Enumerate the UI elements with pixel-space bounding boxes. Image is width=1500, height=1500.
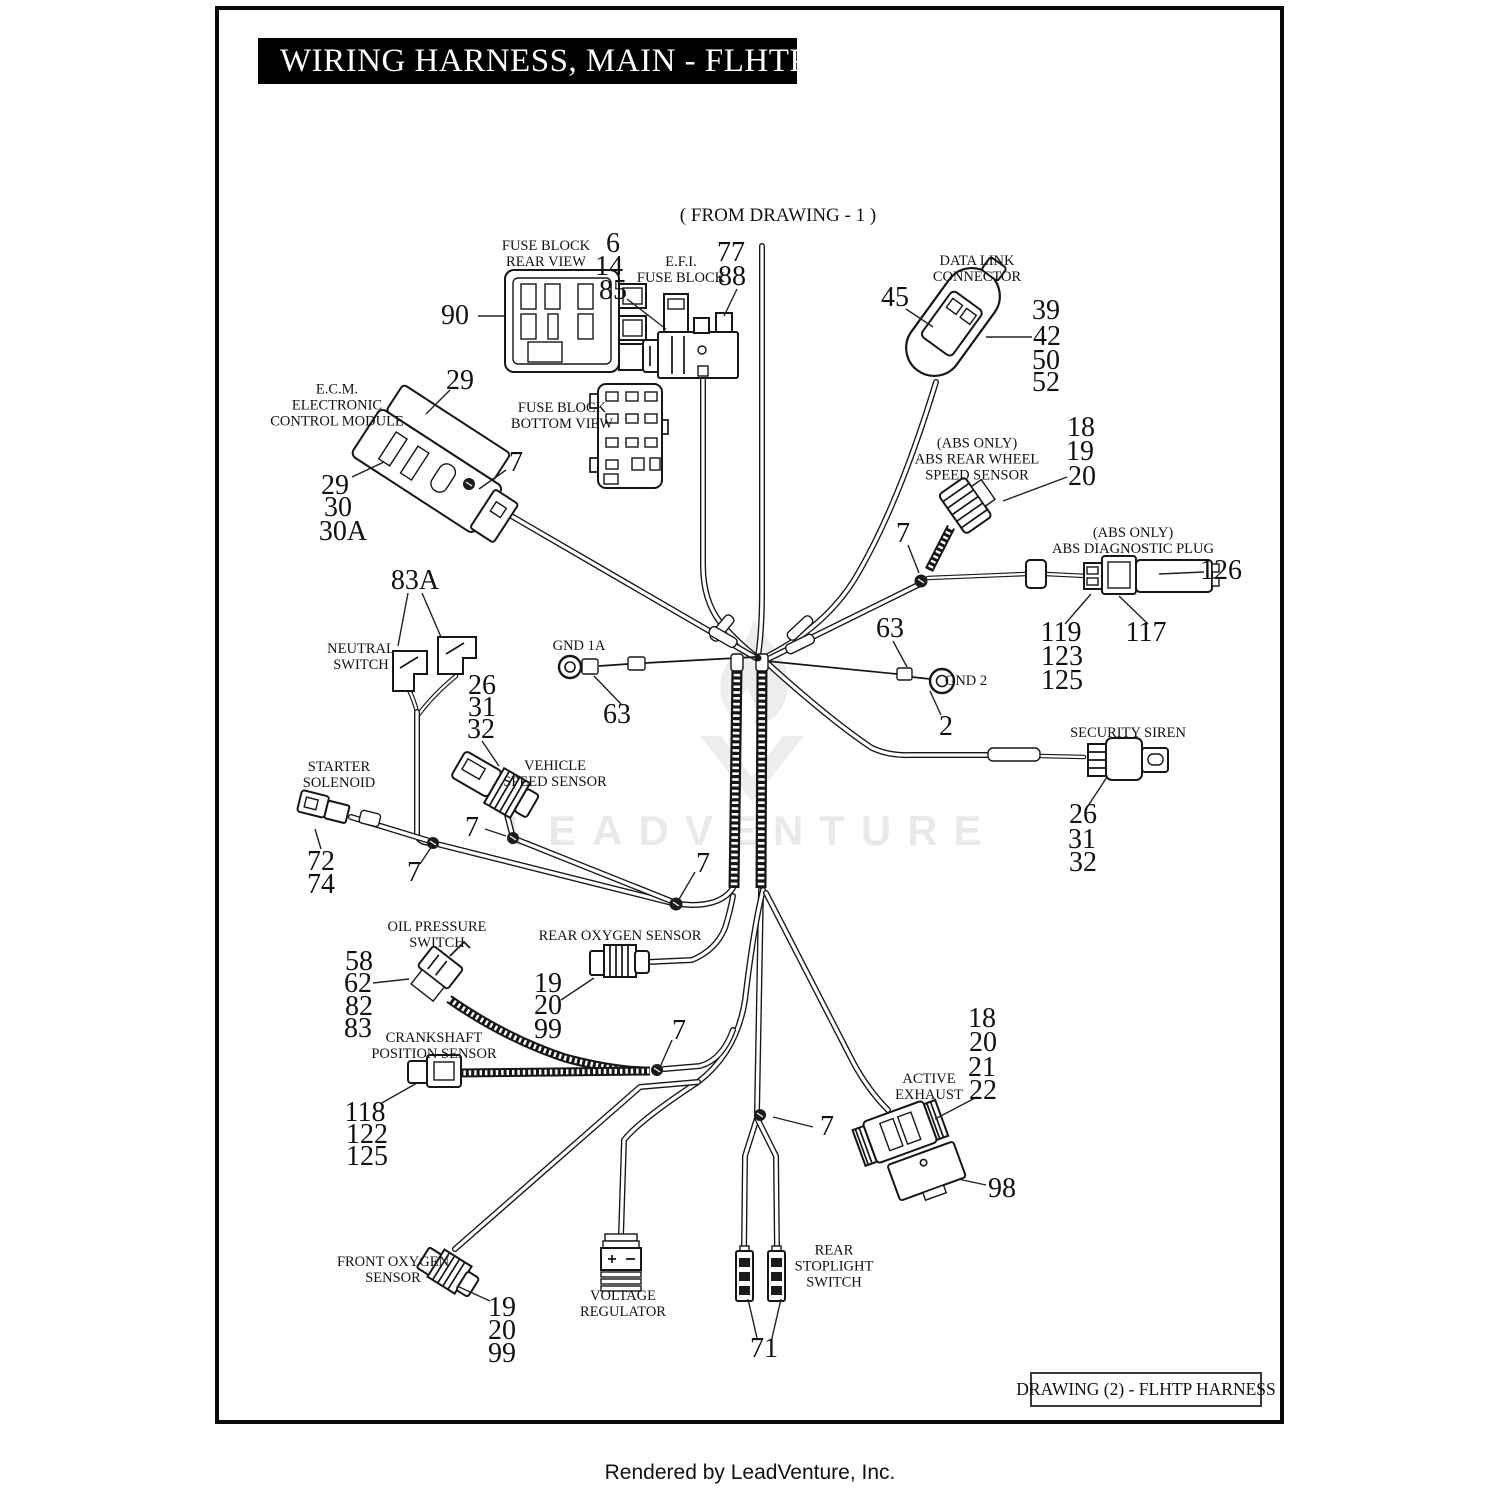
label-abs-diagnostic-plug: (ABS ONLY) ABS DIAGNOSTIC PLUG <box>1052 525 1214 557</box>
part-number-29-top: 29 <box>446 365 474 397</box>
label-starter-solenoid: STARTER SOLENOID <box>303 759 376 791</box>
label-crankshaft-position-sensor: CRANKSHAFT POSITION SENSOR <box>371 1030 496 1062</box>
label-abs-rear-wheel-speed-sensor: (ABS ONLY) ABS REAR WHEEL SPEED SENSOR <box>915 436 1040 485</box>
part-number-7-clip3: 7 <box>696 848 710 880</box>
part-number-83a: 83A <box>391 565 439 597</box>
label-fuse-block-rear-view: FUSE BLOCK REAR VIEW <box>502 238 590 270</box>
part-number-74: 74 <box>307 869 335 901</box>
label-neutral-switch: NEUTRAL SWITCH <box>327 641 395 673</box>
part-number-88: 88 <box>718 261 746 293</box>
part-number-7-clip1: 7 <box>407 857 421 889</box>
label-efi-fuse-block: E.F.I. FUSE BLOCK <box>637 254 725 286</box>
label-ecm: E.C.M. ELECTRONIC CONTROL MODULE <box>270 382 404 431</box>
label-front-oxygen-sensor: FRONT OXYGEN SENSOR <box>337 1254 449 1286</box>
part-number-63-gnd2: 63 <box>876 613 904 645</box>
label-vehicle-speed-sensor: VEHICLE SPEED SENSOR <box>503 758 607 790</box>
drawing-caption: DRAWING (2) - FLHTP HARNESS <box>1030 1372 1262 1407</box>
part-number-117: 117 <box>1126 617 1167 649</box>
part-number-2: 2 <box>939 711 953 743</box>
part-number-20-abs: 20 <box>1068 461 1096 493</box>
part-number-98: 98 <box>988 1173 1016 1205</box>
part-number-85: 85 <box>599 275 627 307</box>
page-title: WIRING HARNESS, MAIN - FLHTP <box>258 38 797 84</box>
part-number-63-gnd1a: 63 <box>603 699 631 731</box>
part-number-7-clip4: 7 <box>672 1015 686 1047</box>
part-number-30a: 30A <box>319 516 367 548</box>
part-number-71: 71 <box>750 1333 778 1365</box>
rendered-by-footer: Rendered by LeadVenture, Inc. <box>605 1461 896 1485</box>
label-voltage-regulator: VOLTAGE REGULATOR <box>580 1288 666 1320</box>
label-security-siren: SECURITY SIREN <box>1070 725 1186 741</box>
label-gnd-1a: GND 1A <box>553 638 606 654</box>
label-data-link-connector: DATA LINK CONNECTOR <box>933 253 1021 285</box>
part-number-32-siren: 32 <box>1069 847 1097 879</box>
part-number-7-clip5: 7 <box>820 1111 834 1143</box>
part-number-7-clip2: 7 <box>465 812 479 844</box>
part-number-22-exhaust: 22 <box>969 1075 997 1107</box>
label-gnd-2: GND 2 <box>945 673 987 689</box>
part-number-126: 126 <box>1200 555 1242 587</box>
part-number-45: 45 <box>881 282 909 314</box>
from-drawing-note: ( FROM DRAWING - 1 ) <box>680 205 876 227</box>
part-number-7-abs: 7 <box>896 518 910 550</box>
part-number-52: 52 <box>1032 367 1060 399</box>
part-number-125-crank: 125 <box>346 1141 388 1173</box>
part-number-99-rear-o2: 99 <box>534 1014 562 1046</box>
part-number-7-ecm: 7 <box>509 447 523 479</box>
label-rear-stoplight-switch: REAR STOPLIGHT SWITCH <box>795 1243 874 1292</box>
part-number-32-vss: 32 <box>467 714 495 746</box>
label-oil-pressure-switch: OIL PRESSURE SWITCH <box>388 919 487 951</box>
label-fuse-block-bottom-view: FUSE BLOCK BOTTOM VIEW <box>511 400 613 432</box>
part-number-125: 125 <box>1041 665 1083 697</box>
part-number-99-front-o2: 99 <box>488 1338 516 1370</box>
label-active-exhaust: ACTIVE EXHAUST <box>895 1071 963 1103</box>
diagram-canvas: LEADVENTURE <box>0 0 1500 1500</box>
part-number-83: 83 <box>344 1013 372 1045</box>
part-number-90: 90 <box>441 300 469 332</box>
label-rear-oxygen-sensor: REAR OXYGEN SENSOR <box>539 928 702 944</box>
